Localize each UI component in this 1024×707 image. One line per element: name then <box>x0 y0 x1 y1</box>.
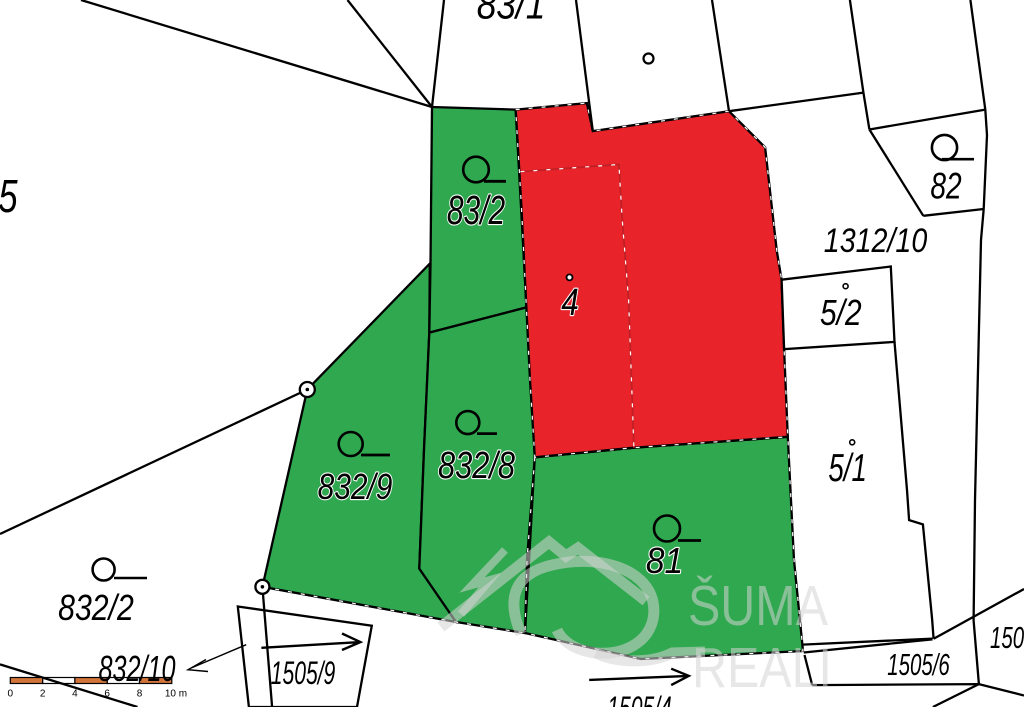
svg-text:4: 4 <box>72 689 78 700</box>
svg-text:2: 2 <box>40 689 46 700</box>
svg-text:82: 82 <box>930 165 961 207</box>
svg-text:8: 8 <box>137 689 143 700</box>
svg-text:832/9: 832/9 <box>318 467 393 507</box>
svg-text:832/8: 832/8 <box>438 445 516 487</box>
svg-text:5/1: 5/1 <box>828 448 867 490</box>
svg-text:1505/6: 1505/6 <box>887 647 950 682</box>
svg-text:6: 6 <box>104 689 110 700</box>
svg-text:1505: 1505 <box>990 620 1024 655</box>
svg-text:832/2: 832/2 <box>58 589 134 629</box>
svg-text:10 m: 10 m <box>165 689 187 700</box>
svg-text:ŠUMA: ŠUMA <box>688 574 829 638</box>
svg-text:1312/10: 1312/10 <box>824 220 928 259</box>
svg-text:5/2: 5/2 <box>820 293 862 333</box>
svg-text:4: 4 <box>561 281 579 323</box>
svg-text:1505/4: 1505/4 <box>607 689 672 707</box>
svg-text:1505/9: 1505/9 <box>271 654 336 691</box>
svg-text:83/2: 83/2 <box>447 187 505 233</box>
svg-text:5: 5 <box>0 170 18 222</box>
svg-text:REALI: REALI <box>692 636 832 700</box>
svg-text:832/10: 832/10 <box>98 649 176 690</box>
svg-text:81: 81 <box>646 542 683 581</box>
svg-text:83/1: 83/1 <box>477 0 546 28</box>
svg-text:0: 0 <box>8 689 14 700</box>
